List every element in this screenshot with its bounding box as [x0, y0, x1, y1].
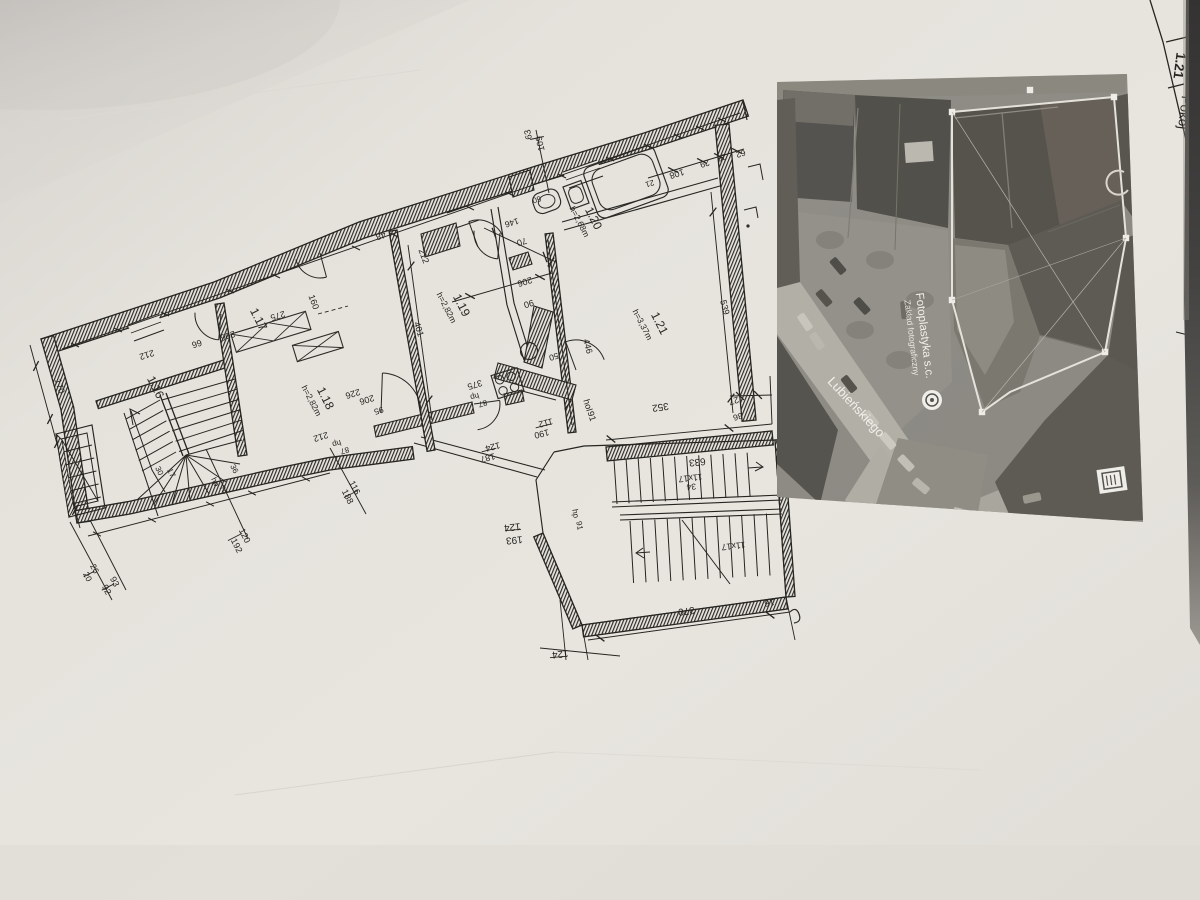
svg-text:633: 633 [688, 455, 706, 468]
svg-text:124: 124 [503, 520, 521, 533]
svg-text:34: 34 [686, 482, 697, 493]
svg-text:63: 63 [522, 129, 534, 141]
svg-text:16: 16 [764, 597, 775, 608]
svg-text:124: 124 [551, 647, 569, 660]
svg-text:193: 193 [505, 533, 523, 546]
